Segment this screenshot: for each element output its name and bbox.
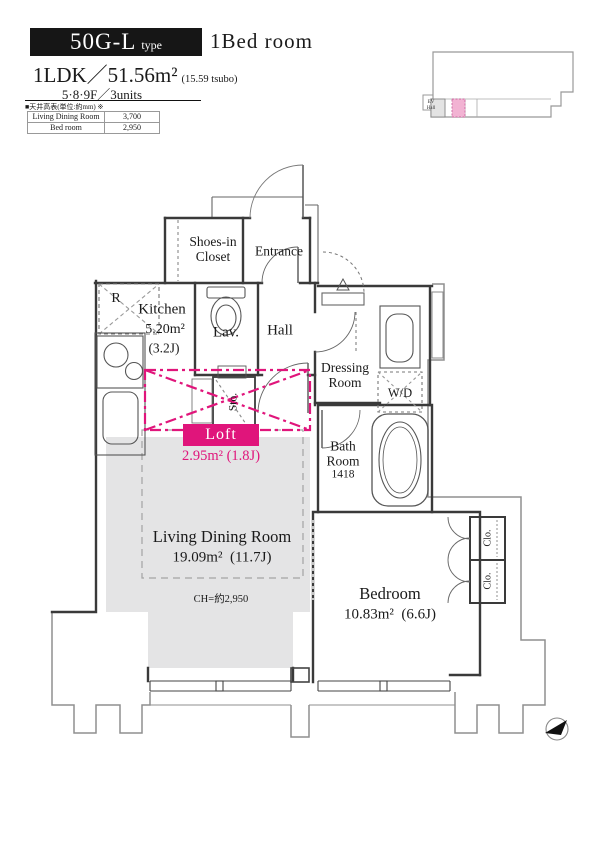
- label-fridge: R: [111, 291, 120, 307]
- key-plan-svg: [415, 44, 575, 139]
- label-hall: Hall: [267, 323, 293, 340]
- porch-outline: [212, 197, 443, 358]
- label-ldk: Living Dining Room: [153, 528, 291, 546]
- type-banner: 50G-L type: [30, 28, 202, 56]
- front-door: [250, 165, 303, 218]
- category-label: 1Bed room: [210, 29, 313, 54]
- label-closet-lower: Clo.: [482, 573, 493, 590]
- unit-band-line: [431, 99, 551, 117]
- label-bedroom: Bedroom: [359, 585, 420, 603]
- ceiling-row-value: 2,950: [105, 123, 160, 134]
- label-closet-upper: Clo.: [482, 530, 493, 547]
- label-loft-area: 2.95m² (1.8J): [182, 448, 260, 464]
- ceiling-row-label: Bed room: [28, 123, 105, 134]
- ceiling-height-table: Living Dining Room 3,700 Bed room 2,950: [27, 111, 160, 134]
- header-divider: [25, 100, 201, 101]
- label-loft: Loft: [183, 424, 259, 446]
- label-kitchen-jo: (3.2J): [148, 340, 179, 355]
- label-bath-room: BathRoom 1418: [326, 438, 359, 481]
- label-dressing-room: DressingRoom: [321, 360, 369, 390]
- label-ldk-ceiling-height: CH=約2,950: [194, 594, 249, 606]
- label-kitchen-area: 5.20m²: [145, 322, 185, 338]
- bathtub: [372, 414, 428, 506]
- label-storage: Sto.: [228, 393, 241, 411]
- compass-icon: [545, 718, 568, 740]
- keyplan-ev-hall-label: EV Hall: [424, 100, 438, 111]
- spec-tsubo: (15.59 tsubo): [182, 74, 238, 85]
- type-suffix: type: [141, 38, 162, 53]
- label-shoes-closet: Shoes-inCloset: [189, 234, 236, 264]
- label-ldk-area: 19.09m² (11.7J): [173, 550, 272, 567]
- type-code: 50G-L: [70, 29, 136, 55]
- dressing-room-door: [315, 312, 356, 352]
- windows: [150, 668, 450, 691]
- table-row: Bed room 2,950: [28, 123, 160, 134]
- ceiling-row-label: Living Dining Room: [28, 112, 105, 123]
- highlighted-unit: [452, 99, 465, 117]
- label-lavatory: Lav.: [213, 325, 239, 342]
- label-bedroom-area: 10.83m² (6.6J): [344, 607, 436, 624]
- vanity: [380, 306, 420, 368]
- label-washer-dryer: W/D: [388, 386, 412, 400]
- label-entrance: Entrance: [255, 243, 303, 258]
- closet-doors: [448, 517, 470, 603]
- table-row: Living Dining Room 3,700: [28, 112, 160, 123]
- label-kitchen: Kitchen: [138, 302, 185, 319]
- kitchen-counter: [95, 333, 145, 455]
- ceiling-row-value: 3,700: [105, 112, 160, 123]
- floorplan-page: { "title_block": { "type_code": "50G-L",…: [0, 0, 600, 850]
